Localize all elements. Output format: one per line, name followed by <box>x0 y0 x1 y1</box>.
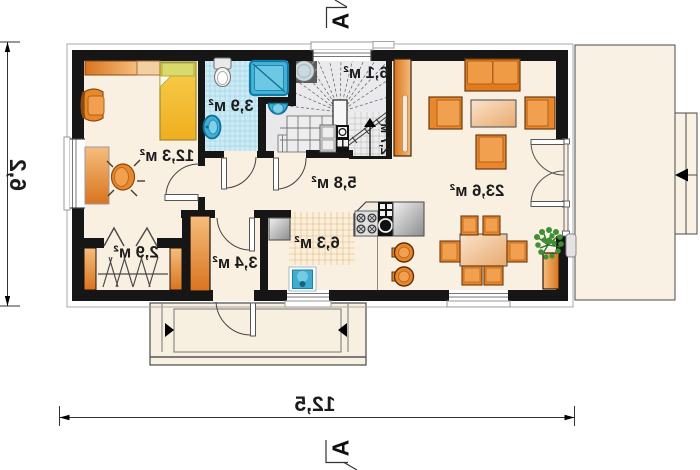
svg-text:3,9 м²: 3,9 м² <box>208 97 254 115</box>
svg-text:3,4 м²: 3,4 м² <box>212 254 258 272</box>
svg-text:2,9 м²: 2,9 м² <box>113 244 159 262</box>
svg-text:2,7 м²: 2,7 м² <box>378 119 393 155</box>
svg-text:A: A <box>327 440 353 457</box>
svg-text:5,8 м²: 5,8 м² <box>311 174 357 192</box>
svg-text:6,2: 6,2 <box>5 159 31 191</box>
svg-text:23,6 м²: 23,6 м² <box>449 182 504 200</box>
svg-text:6,1 м²: 6,1 м² <box>343 64 389 82</box>
svg-text:12,5: 12,5 <box>294 393 335 416</box>
svg-text:12,3 м²: 12,3 м² <box>139 147 194 165</box>
svg-text:6,3 м²: 6,3 м² <box>294 234 340 252</box>
svg-text:A: A <box>327 13 353 30</box>
